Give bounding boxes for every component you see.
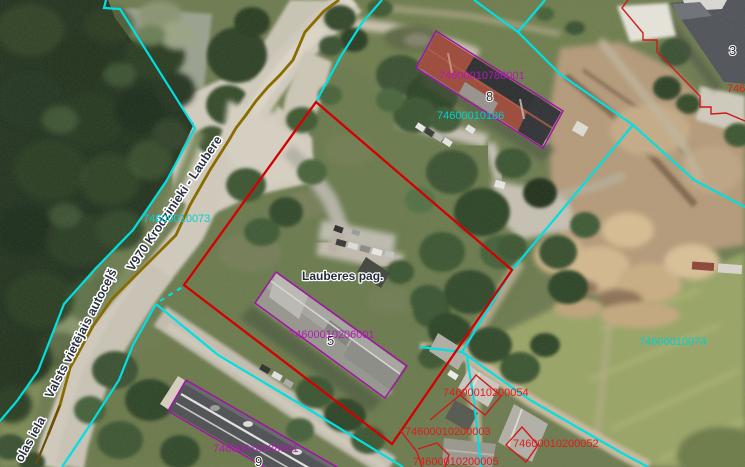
- svg-text:74600010786001: 74600010786001: [439, 70, 525, 82]
- svg-text:74600: 74600: [727, 83, 745, 95]
- svg-text:Lauberes pag.: Lauberes pag.: [302, 269, 383, 283]
- svg-text:74600010073: 74600010073: [143, 213, 210, 225]
- svg-text:74600010074: 74600010074: [639, 336, 706, 348]
- svg-text:74600010200052: 74600010200052: [513, 438, 599, 450]
- svg-text:74600010200005: 74600010200005: [413, 456, 499, 467]
- svg-text:74600010186: 74600010186: [437, 110, 504, 122]
- svg-text:74600010200054: 74600010200054: [443, 387, 529, 399]
- svg-text:8: 8: [486, 89, 493, 104]
- svg-text:74600010200003: 74600010200003: [405, 426, 491, 438]
- svg-text:74600010188001: 74600010188001: [213, 443, 299, 455]
- svg-text:3: 3: [729, 43, 736, 58]
- svg-text:9: 9: [255, 454, 262, 467]
- svg-text:74600010206001: 74600010206001: [289, 329, 375, 341]
